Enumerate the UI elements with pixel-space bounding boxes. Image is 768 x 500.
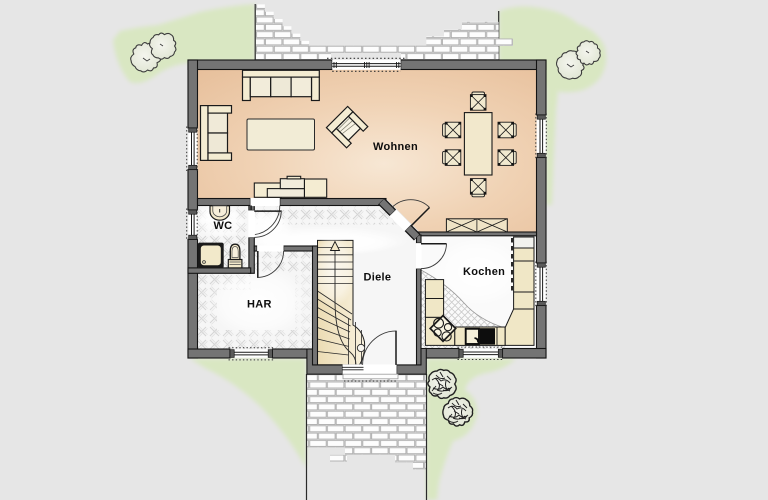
svg-text:Diele: Diele [364,272,392,284]
svg-text:Wohnen: Wohnen [373,141,418,153]
svg-text:Kochen: Kochen [463,266,505,278]
svg-text:WC: WC [214,220,233,232]
svg-text:HAR: HAR [247,299,272,311]
